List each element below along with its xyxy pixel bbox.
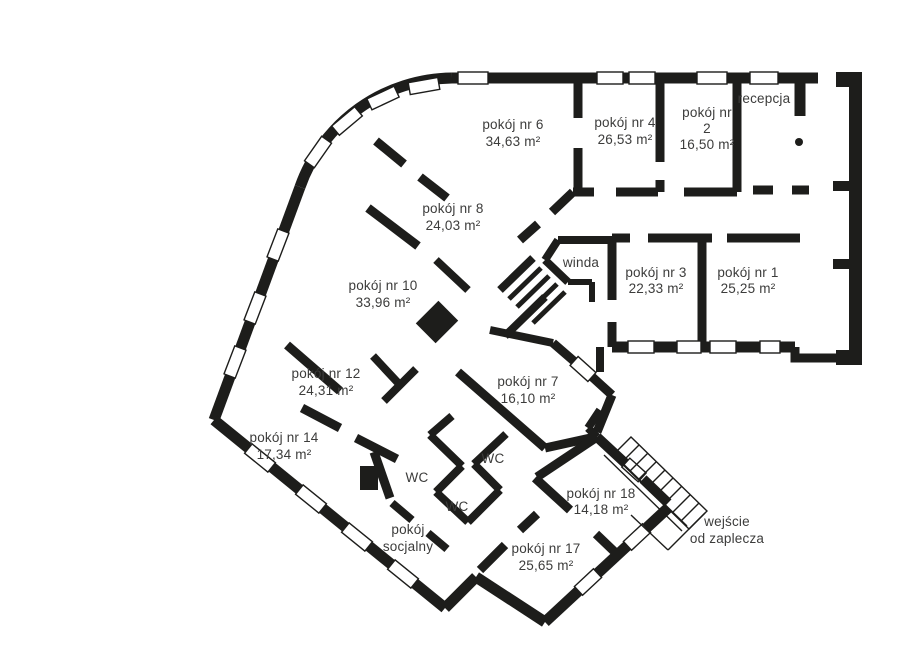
room-7-area: 16,10 m² — [501, 391, 556, 406]
room-8-label: pokój nr 8 — [422, 201, 483, 216]
room-12-label: pokój nr 12 — [292, 366, 361, 381]
room-17-area: 25,65 m² — [519, 558, 574, 573]
elevator-label: winda — [562, 255, 600, 270]
wc-1-label: WC — [482, 451, 505, 466]
room-1-label: pokój nr 1 — [717, 265, 778, 280]
social-room-label-line2: socjalny — [383, 539, 433, 554]
wc-3-label: WC — [446, 499, 469, 514]
room-2-label: pokój nr — [682, 105, 732, 120]
back-entrance-label-line1: wejście — [703, 514, 750, 529]
room-14-area: 17,34 m² — [257, 447, 312, 462]
room-4-area: 26,53 m² — [598, 132, 653, 147]
floor-plan-svg: pokój nr 6 34,63 m² pokój nr 4 26,53 m² … — [0, 0, 924, 657]
room-18-label: pokój nr 18 — [567, 486, 636, 501]
back-entrance-label-line2: od zaplecza — [690, 531, 765, 546]
room-3-area: 22,33 m² — [629, 281, 684, 296]
room-12-area: 24,31 m² — [299, 383, 354, 398]
social-room-label-line1: pokój — [391, 522, 424, 537]
room-10-label: pokój nr 10 — [349, 278, 418, 293]
room-1-area: 25,25 m² — [721, 281, 776, 296]
room-2-number: 2 — [703, 121, 711, 136]
room-7-label: pokój nr 7 — [497, 374, 558, 389]
room-8-area: 24,03 m² — [426, 218, 481, 233]
floor-plan-page: pokój nr 6 34,63 m² pokój nr 4 26,53 m² … — [0, 0, 924, 657]
room-6-label: pokój nr 6 — [482, 117, 543, 132]
room-18-area: 14,18 m² — [574, 502, 629, 517]
wc-2-label: WC — [406, 470, 429, 485]
right-stairwell-wall — [833, 72, 862, 365]
room-labels: pokój nr 6 34,63 m² pokój nr 4 26,53 m² … — [250, 91, 791, 573]
room-17-label: pokój nr 17 — [512, 541, 581, 556]
reception-label: recepcja — [738, 91, 791, 106]
reception-column — [795, 138, 803, 146]
room-6-area: 34,63 m² — [486, 134, 541, 149]
room-2-area: 16,50 m² — [680, 137, 735, 152]
room-14-label: pokój nr 14 — [250, 430, 319, 445]
room-4-label: pokój nr 4 — [594, 115, 656, 130]
room-10-area: 33,96 m² — [356, 295, 411, 310]
room-3-label: pokój nr 3 — [625, 265, 686, 280]
